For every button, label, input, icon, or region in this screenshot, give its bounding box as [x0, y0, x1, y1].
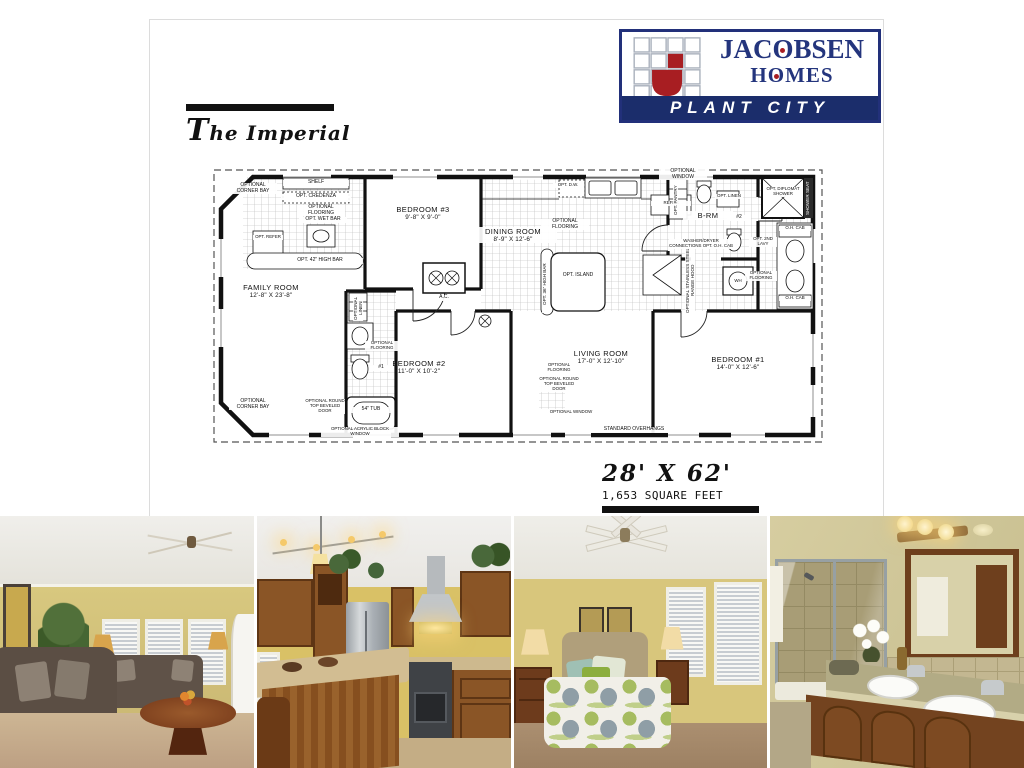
logo-brand-sub: HOMES — [710, 64, 874, 86]
window — [714, 582, 762, 685]
photo-bathroom — [770, 516, 1024, 768]
lavatory-2 — [786, 270, 804, 292]
label-2nd-lavy: OPT. 2ND LAVY — [749, 237, 777, 247]
bar-stool — [257, 697, 290, 768]
photo-strip — [0, 516, 1024, 768]
label-round-top-door-1: OPTIONAL ROUND TOP BEVELED DOOR — [305, 399, 345, 414]
range — [409, 662, 452, 738]
logo-wordmark: JACOBSEN HOMES — [710, 34, 874, 86]
table-lamp — [521, 629, 549, 654]
mirror — [905, 549, 1019, 660]
flower-centerpiece — [180, 690, 195, 706]
plant — [323, 549, 364, 574]
upper-cabinets — [257, 579, 313, 647]
light-bulb — [917, 519, 933, 535]
label-wh: WH — [730, 279, 746, 284]
label-corner-bay-bottom: OPTIONAL CORNER BAY — [229, 399, 277, 410]
drawer-line — [519, 678, 546, 680]
label-flooring-dining: OPTIONAL FLOORING — [541, 219, 589, 230]
wall-art — [3, 584, 32, 656]
recessed-light — [973, 524, 993, 536]
mirror-window-reflection — [917, 577, 948, 636]
mirror-cabinet-reflection — [976, 565, 1007, 648]
label-ohcab-bottom: O.H. CAB — [779, 296, 811, 301]
floor — [770, 702, 811, 768]
track-light-bulb — [313, 544, 320, 551]
label-window-top: OPTIONAL WINDOW — [659, 169, 707, 180]
photo-bedroom — [514, 516, 768, 768]
faucet — [907, 665, 925, 678]
title-block: The Imperial — [186, 104, 356, 148]
island — [551, 253, 605, 311]
wall-cabinet — [391, 587, 414, 647]
track-light-bulb — [280, 539, 287, 546]
room-family: FAMILY ROOM 12'-8" X 23'-8" — [215, 283, 327, 299]
coffee-table — [140, 697, 236, 757]
label-diplomat-shower: OPT. DIPLOMAT SHOWER — [763, 187, 803, 197]
faucet — [981, 680, 1004, 695]
hood-chimney — [427, 556, 445, 596]
drawer — [460, 678, 511, 700]
label-washer-dryer: WASHER/DRYER CONNECTIONS OPT. O.H. CAB — [669, 239, 733, 249]
bed — [544, 677, 671, 748]
label-bath1: #1 — [369, 365, 393, 371]
page-title: The Imperial — [186, 113, 356, 148]
label-tub: 54" TUB — [349, 407, 393, 413]
label-ohcab-top: O.H. CAB — [779, 226, 811, 231]
logo-red-j — [652, 70, 682, 96]
jacobsen-homes-logo: JACOBSEN HOMES PLANT CITY — [619, 29, 881, 123]
lavatory-1 — [786, 240, 804, 262]
label-credenza: OPT. CREDENZA — [281, 194, 351, 200]
cabinet-door — [871, 708, 914, 767]
label-refer: REFER — [651, 201, 691, 206]
range-hood — [409, 594, 462, 622]
label-ac: A.C. — [429, 295, 459, 301]
logo-grid-icon — [630, 36, 706, 98]
upper-cabinets-right — [460, 571, 511, 637]
fridge-handle — [365, 611, 367, 655]
brm-toilet — [697, 185, 711, 203]
photo-kitchen — [257, 516, 511, 768]
label-wet-bar: OPT. WET BAR — [299, 217, 347, 223]
light-bulb — [938, 524, 954, 540]
room-bedroom3: BEDROOM #3 9'-8" X 9'-0" — [371, 205, 475, 221]
room-bedroom1: BEDROOM #1 14'-0" X 12'-6" — [679, 355, 797, 371]
throw-pillow — [54, 659, 90, 700]
label-opt-linen: OPT. LINEN — [715, 194, 743, 199]
label-flooring-bath1: OPTIONAL FLOORING — [365, 341, 399, 351]
label-range-hood: OPTIONAL STAINLESS STEEL RANGE HOOD — [685, 247, 695, 313]
square-feet: 1,653 SQUARE FEET — [602, 489, 759, 502]
fan-motor — [620, 528, 630, 542]
table-base — [168, 728, 207, 755]
label-flooring-bath2: OPTIONAL FLOORING — [745, 271, 777, 281]
track-light-bulb — [379, 531, 386, 538]
drawer-line — [519, 699, 546, 701]
size-rule — [602, 506, 759, 513]
oven-window — [414, 692, 447, 722]
logo-plant-city-banner: PLANT CITY — [622, 96, 878, 120]
soap-bottle — [897, 647, 907, 670]
hutch-shelf — [318, 574, 342, 605]
floor-plan: FAMILY ROOM 12'-8" X 23'-8" BEDROOM #3 9… — [213, 169, 823, 443]
light-bulb — [897, 516, 913, 532]
orchid-flowers — [846, 617, 892, 662]
label-round-top-door-2: OPTIONAL ROUND TOP BEVELED DOOR — [537, 377, 581, 392]
photo-living-room — [0, 516, 254, 768]
label-acrylic-window: OPTIONAL ACRYLIC BLOCK WINDOW — [321, 427, 399, 437]
fan-motor — [187, 536, 196, 548]
throw-pillow — [171, 659, 194, 682]
wet-bar-sink — [307, 225, 335, 247]
label-flooring-entry: OPTIONAL FLOORING — [539, 363, 579, 373]
label-island: OPT. ISLAND — [555, 273, 601, 279]
logo-brand-name: JACOBSEN — [710, 34, 874, 64]
flyer-page: The Imperial JACOBSEN HOMES PLANT CITY — [149, 19, 884, 517]
window — [770, 566, 783, 642]
ceiling-fan-icon — [147, 531, 233, 556]
room-brm: B-RM — [683, 211, 733, 220]
label-pantry: OPT. PANTRY — [673, 183, 678, 217]
label-flooring-wetbar: OPTIONAL FLOORING — [297, 205, 345, 216]
home-size: 28' X 62' — [602, 460, 759, 487]
cabinet-door — [924, 713, 972, 768]
size-block: 28' X 62' 1,653 SQUARE FEET — [602, 460, 759, 513]
plant — [465, 541, 511, 571]
label-dishwasher: OPT. D.W. — [553, 183, 583, 188]
title-rule — [186, 104, 334, 111]
label-shower-seat: SHOWER SEAT — [805, 180, 810, 216]
plant — [358, 559, 394, 582]
throw-pillow — [14, 661, 51, 702]
cabinet-door — [823, 704, 862, 761]
ceiling-fan-icon — [585, 516, 666, 561]
label-high-bar-42: OPT. 42" HIGH BAR — [277, 258, 363, 264]
label-window-bottom: OPTIONAL WINDOW — [549, 410, 593, 415]
hood-light — [419, 622, 452, 635]
label-standard-overhangs: STANDARD OVERHANGS — [591, 427, 677, 433]
label-linen-bath1: OPTIONAL LINEN — [353, 295, 363, 321]
logo-red-square — [668, 54, 683, 68]
label-shelf: SHELF — [283, 180, 349, 186]
label-high-bar-36: OPT. 36" HIGH BAR — [542, 255, 547, 313]
label-opt-refer: OPT. REFER — [253, 235, 283, 240]
label-bath2: #2 — [727, 215, 751, 221]
label-corner-bay-top: OPTIONAL CORNER BAY — [229, 183, 277, 194]
